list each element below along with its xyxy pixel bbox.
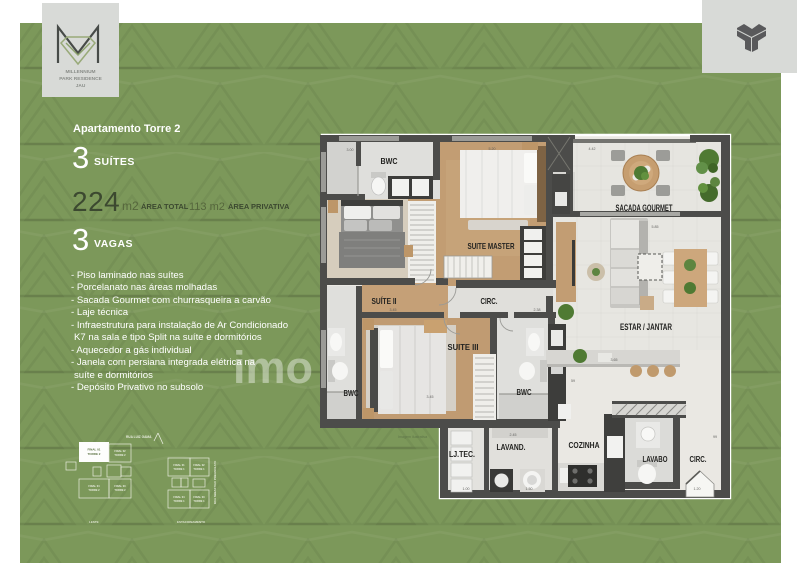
svg-text:224: 224 <box>72 186 120 217</box>
svg-text:RUA SEBASTIAO PREGNOLATO: RUA SEBASTIAO PREGNOLATO <box>213 460 217 504</box>
svg-text:4.42: 4.42 <box>589 147 596 151</box>
svg-text:SUÍTE II: SUÍTE II <box>372 296 397 306</box>
svg-text:SUITE III: SUITE III <box>448 342 479 352</box>
svg-text:- Piso laminado nas suítes: - Piso laminado nas suítes <box>71 270 184 281</box>
svg-text:TORRE 1: TORRE 1 <box>193 499 205 503</box>
svg-text:- Depósito Privativo no subsol: - Depósito Privativo no subsolo <box>71 382 203 393</box>
svg-text:3.65: 3.65 <box>611 358 618 362</box>
svg-text:LESTE: LESTE <box>89 520 99 524</box>
svg-text:3.45: 3.45 <box>390 308 397 312</box>
svg-text:3: 3 <box>72 222 89 257</box>
svg-text:JAU: JAU <box>76 83 86 89</box>
svg-text:MILLENNIUM: MILLENNIUM <box>65 69 95 75</box>
svg-text:113 m2: 113 m2 <box>189 201 225 213</box>
svg-text:CIRC.: CIRC. <box>690 455 707 464</box>
svg-text:VAGAS: VAGAS <box>94 238 133 250</box>
svg-text:ÁREA TOTAL: ÁREA TOTAL <box>141 202 189 211</box>
svg-text:5.20: 5.20 <box>489 147 496 151</box>
svg-text:1.20: 1.20 <box>694 487 701 491</box>
svg-text:BWC: BWC <box>344 389 359 398</box>
svg-text:FINAL 04: FINAL 04 <box>88 484 100 488</box>
svg-text:TORRE 2: TORRE 2 <box>88 488 100 492</box>
svg-text:1.00: 1.00 <box>463 487 470 491</box>
svg-text:BWC: BWC <box>381 156 398 166</box>
svg-text:ESTACIONAMENTO: ESTACIONAMENTO <box>177 520 206 524</box>
svg-text:3.45: 3.45 <box>427 395 434 399</box>
svg-text:CIRC.: CIRC. <box>481 296 498 306</box>
svg-text:2.38: 2.38 <box>534 308 541 312</box>
svg-text:FINAL 01: FINAL 01 <box>173 463 185 467</box>
svg-text:59: 59 <box>571 379 575 383</box>
svg-text:5.85: 5.85 <box>652 225 659 229</box>
svg-text:FINAL 02: FINAL 02 <box>193 463 205 467</box>
svg-text:3.00: 3.00 <box>347 148 354 152</box>
svg-text:LAVAND.: LAVAND. <box>497 443 526 452</box>
svg-text:- Sacada Gourmet com churrasqu: - Sacada Gourmet com churrasqueira a car… <box>71 295 271 306</box>
svg-text:99: 99 <box>713 435 717 439</box>
svg-text:Apartamento Torre 2: Apartamento Torre 2 <box>73 123 180 135</box>
svg-text:TORRE 2: TORRE 2 <box>88 452 101 456</box>
svg-text:BWC: BWC <box>517 388 532 397</box>
svg-text:suíte e dormitórios: suíte e dormitórios <box>74 370 153 381</box>
svg-text:- Porcelanato nas áreas molhad: - Porcelanato nas áreas molhadas <box>71 282 217 293</box>
svg-text:SUÍTES: SUÍTES <box>94 155 135 168</box>
svg-text:SUITE MASTER: SUITE MASTER <box>468 241 515 251</box>
svg-text:TORRE 2: TORRE 2 <box>114 488 126 492</box>
svg-text:SACADA GOURMET: SACADA GOURMET <box>616 203 673 213</box>
svg-text:LJ.TEC.: LJ.TEC. <box>449 450 475 459</box>
svg-text:1.10: 1.10 <box>668 484 675 488</box>
svg-text:FINAL 02: FINAL 02 <box>114 449 126 453</box>
svg-text:- Janela com persiana integrad: - Janela com persiana integrada elétrica… <box>71 357 256 368</box>
svg-text:FINAL 04: FINAL 04 <box>173 495 185 499</box>
svg-text:TORRE 1: TORRE 1 <box>193 467 205 471</box>
svg-text:m2: m2 <box>122 199 139 213</box>
svg-text:2.45: 2.45 <box>510 433 517 437</box>
svg-text:FINAL 01: FINAL 01 <box>88 448 101 452</box>
svg-text:- Laje técnica: - Laje técnica <box>71 307 129 318</box>
svg-text:FINAL 03: FINAL 03 <box>193 495 205 499</box>
svg-text:1.50: 1.50 <box>526 487 533 491</box>
svg-text:ESTAR / JANTAR: ESTAR / JANTAR <box>620 322 672 332</box>
svg-text:LAVABO: LAVABO <box>643 455 668 464</box>
svg-text:imo: imo <box>233 342 313 393</box>
svg-text:PARK RESIDENCE: PARK RESIDENCE <box>59 76 102 82</box>
svg-text:ÁREA PRIVATIVA: ÁREA PRIVATIVA <box>228 202 290 211</box>
svg-text:3: 3 <box>72 140 89 175</box>
svg-text:- Infraestrutura para instalaç: - Infraestrutura para instalação de Ar C… <box>71 320 288 331</box>
svg-text:- Aquecedor a gás individual: - Aquecedor a gás individual <box>71 345 192 356</box>
svg-text:TORRE 2: TORRE 2 <box>114 453 126 457</box>
svg-text:Imagem ilustrativa: Imagem ilustrativa <box>398 435 427 439</box>
svg-text:COZINHA: COZINHA <box>569 441 600 450</box>
svg-text:TORRE 1: TORRE 1 <box>173 467 185 471</box>
svg-text:RUA LUIZ GAMA: RUA LUIZ GAMA <box>126 435 152 439</box>
svg-text:FINAL 03: FINAL 03 <box>114 484 126 488</box>
svg-text:TORRE 1: TORRE 1 <box>173 499 185 503</box>
